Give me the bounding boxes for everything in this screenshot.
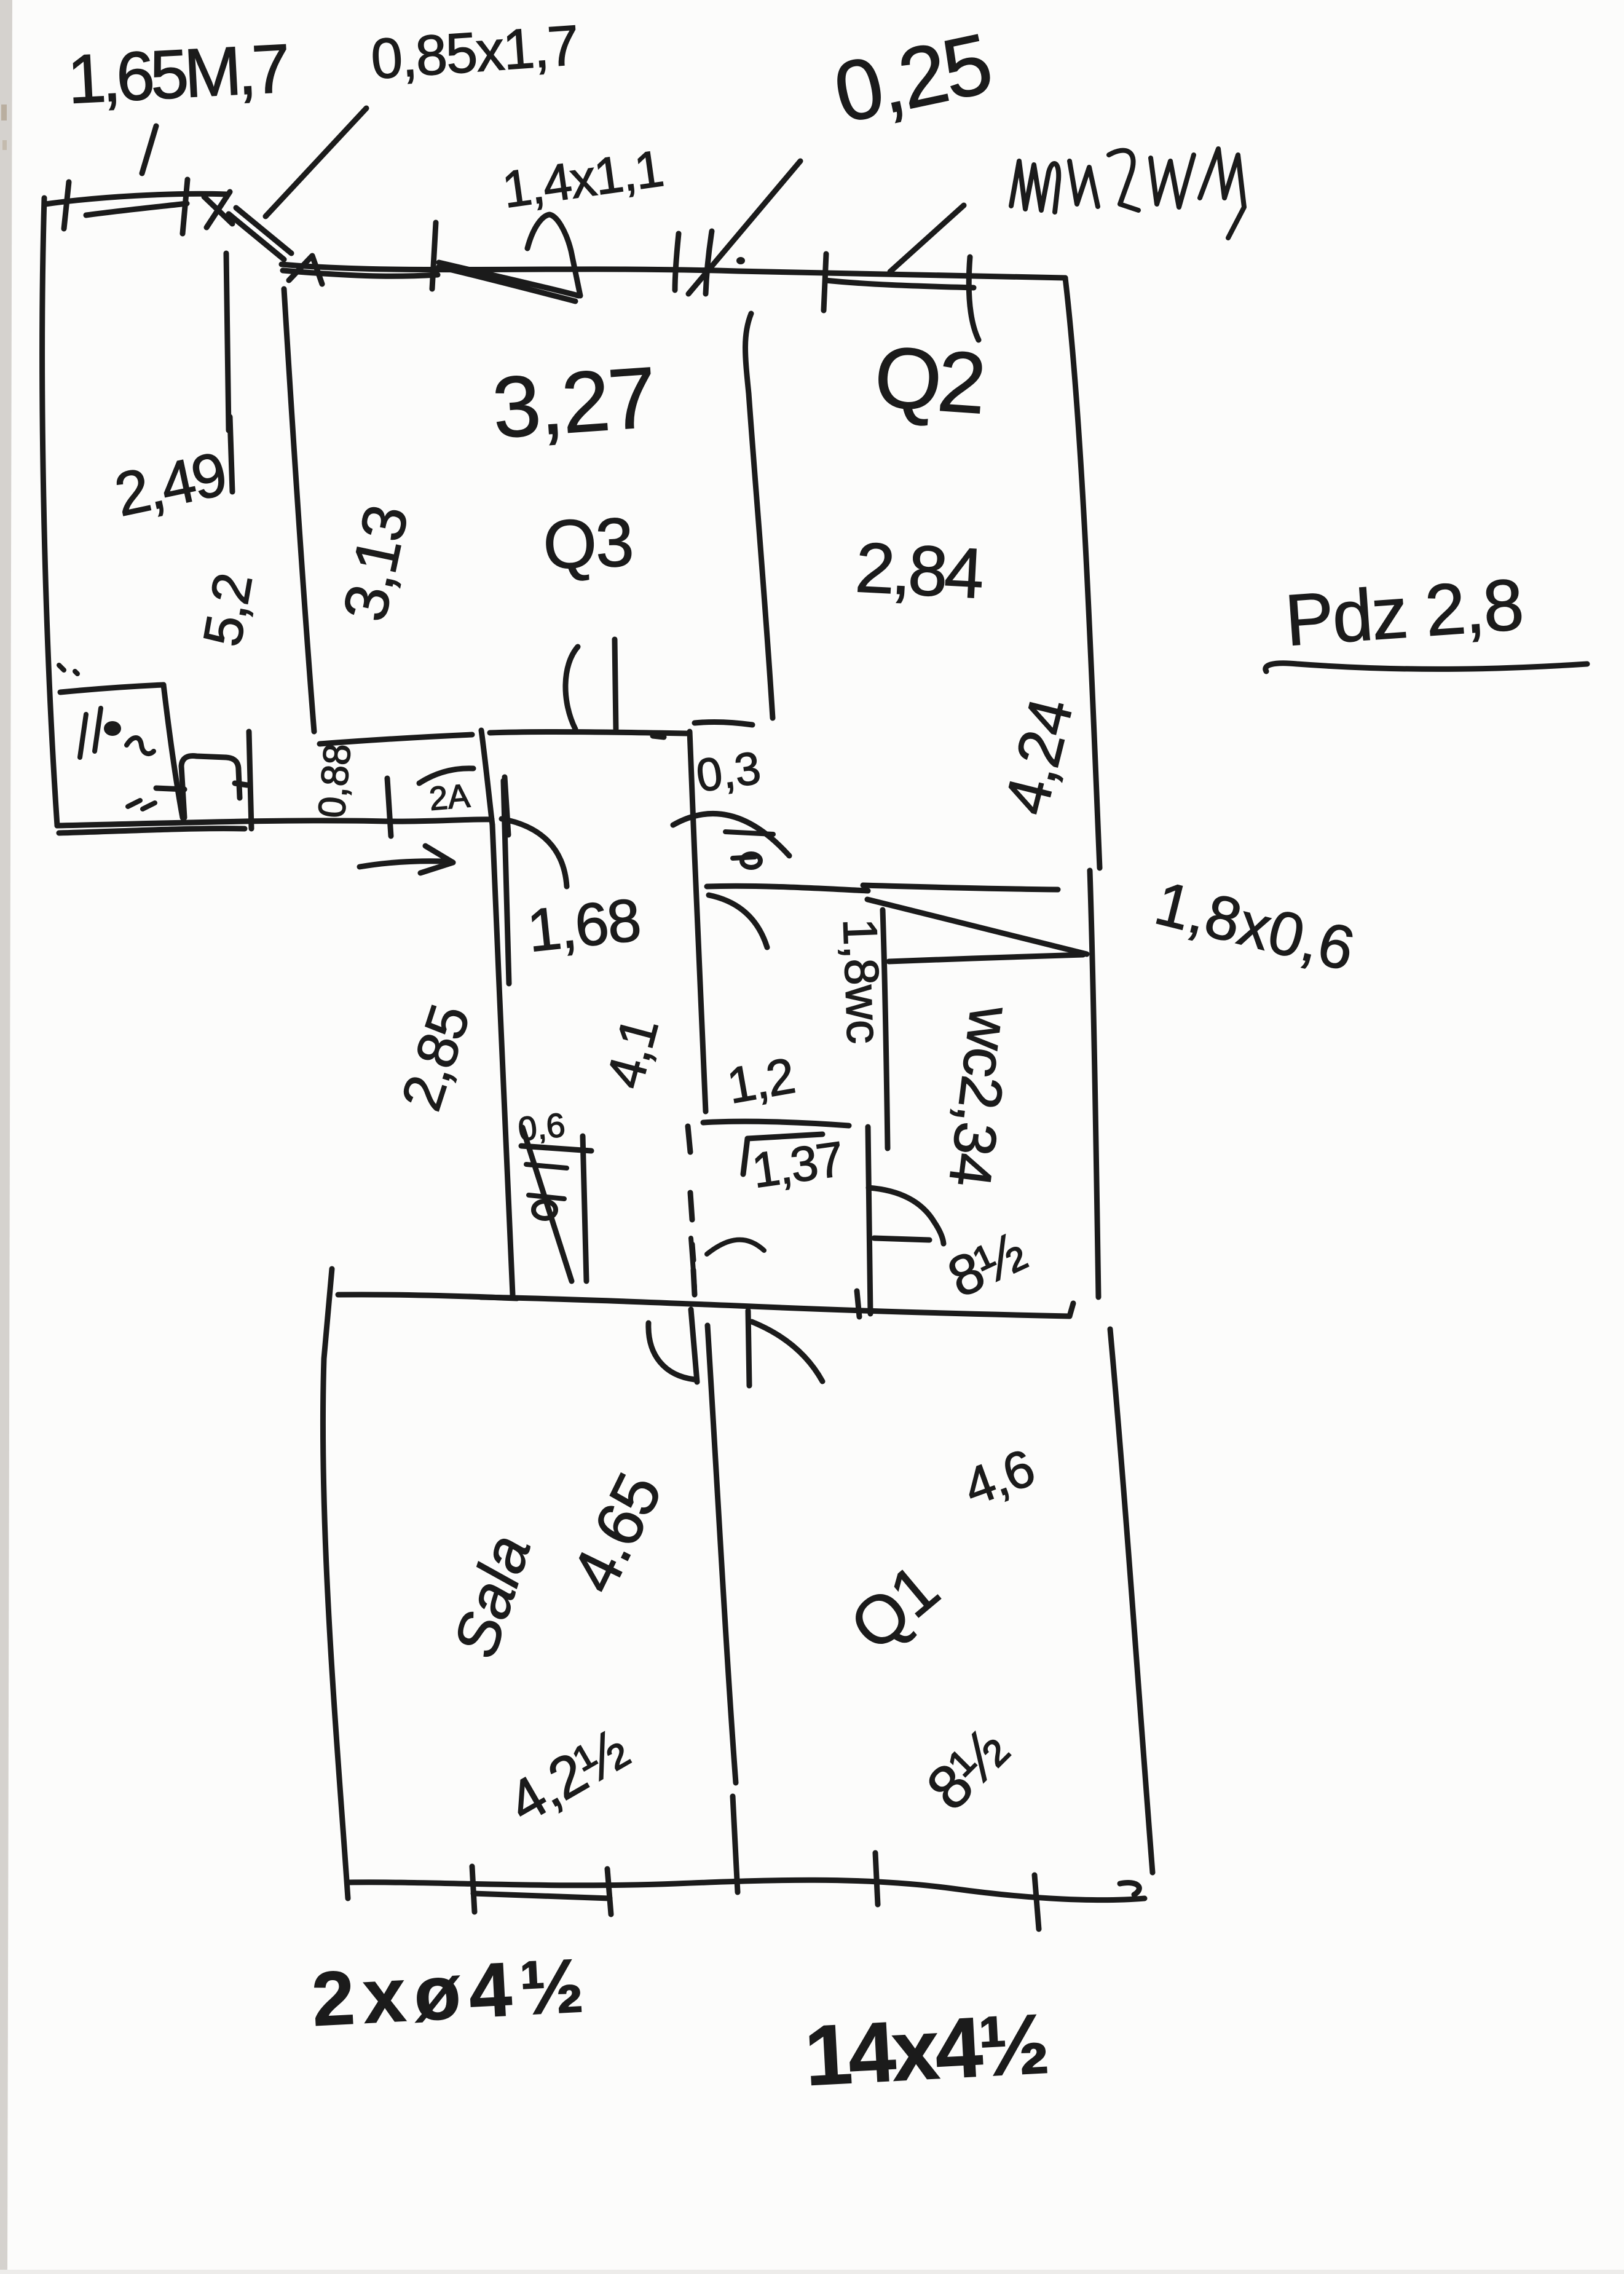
svg-text:2,84: 2,84	[854, 528, 984, 614]
svg-text:0,88: 0,88	[310, 742, 359, 819]
svg-text:0,3: 0,3	[693, 741, 764, 802]
svg-text:Q3: Q3	[542, 503, 634, 583]
svg-text:Q2: Q2	[872, 328, 985, 432]
svg-text:1,8wc: 1,8wc	[833, 918, 891, 1045]
svg-text:1,2: 1,2	[723, 1048, 798, 1114]
svg-text:14x4½: 14x4½	[803, 1997, 1049, 2104]
svg-text:1,68: 1,68	[524, 885, 643, 965]
svg-text:3,27: 3,27	[489, 349, 658, 456]
svg-text:5,2: 5,2	[191, 570, 264, 651]
svg-text:1,65M,7: 1,65M,7	[66, 30, 289, 118]
svg-text:2A: 2A	[428, 777, 471, 818]
svg-text:2xø4½: 2xø4½	[310, 1943, 594, 2042]
svg-text:Pdz 2,8: Pdz 2,8	[1283, 564, 1525, 661]
